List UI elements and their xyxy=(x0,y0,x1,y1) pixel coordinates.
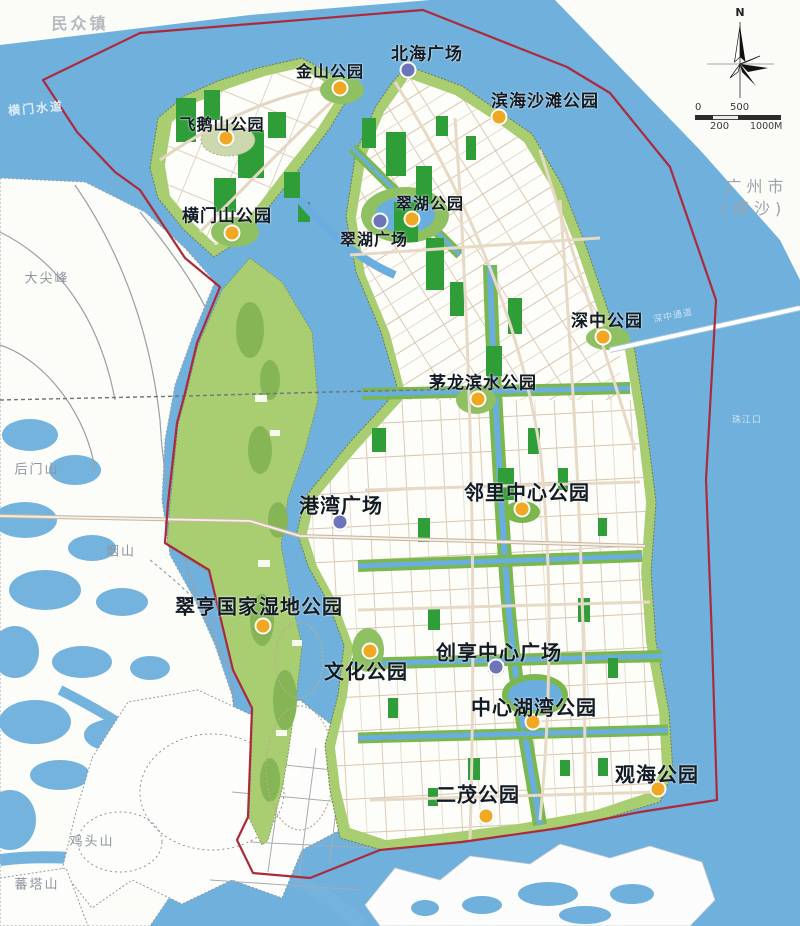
scale-label-0: 0 xyxy=(695,102,701,113)
planning-map: 北海广场金山公园滨海沙滩公园飞鹅山公园横门山公园翠湖公园翠湖广场深中公园茅龙滨水… xyxy=(0,0,800,926)
scale-bar: 0 500 200 1000M xyxy=(690,102,788,134)
scale-label-1000m: 1000M xyxy=(750,121,782,132)
compass-star-icon xyxy=(702,18,778,102)
compass-rose: N xyxy=(702,8,778,112)
scale-label-500: 500 xyxy=(730,102,749,113)
map-canvas xyxy=(0,0,800,926)
compass-north-label: N xyxy=(702,8,778,18)
scale-label-200: 200 xyxy=(710,121,729,132)
scale-bar-track xyxy=(695,115,781,120)
